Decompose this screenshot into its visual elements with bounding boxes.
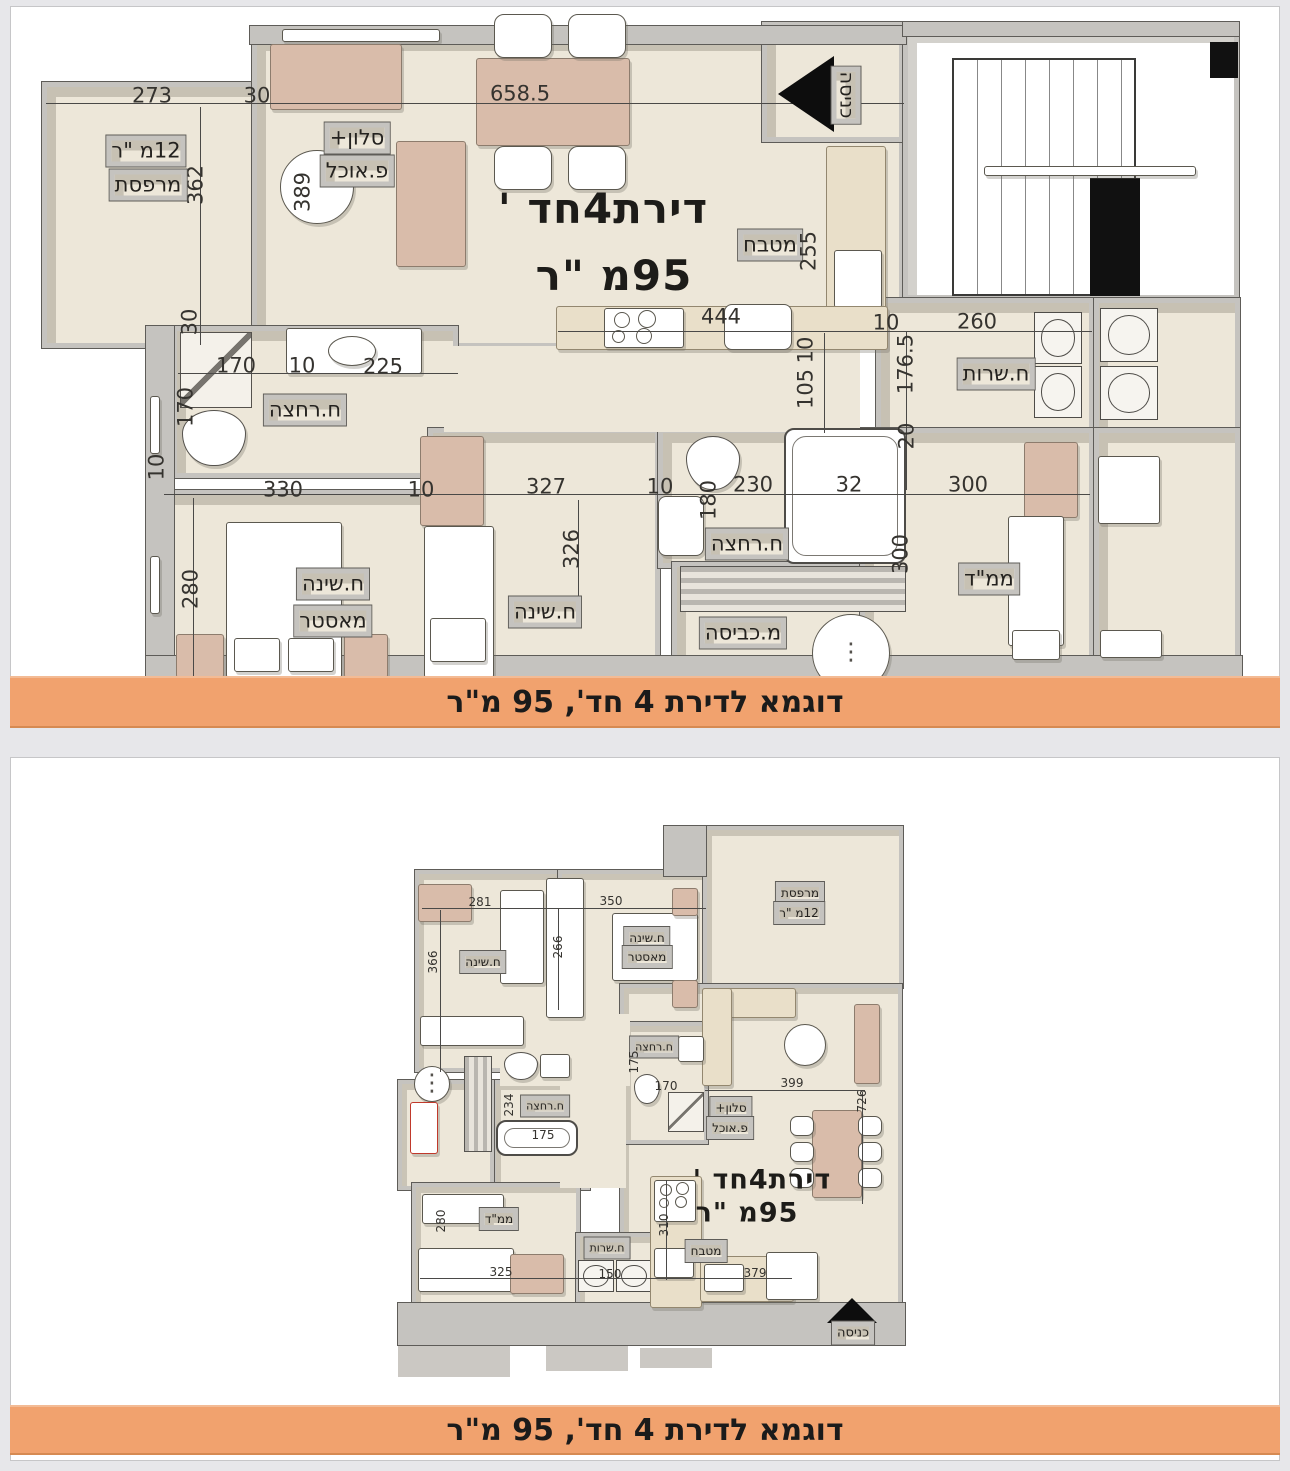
round-table [784, 1024, 826, 1066]
nightstand [176, 634, 224, 678]
wall-footing [546, 1345, 628, 1371]
chair [790, 1142, 814, 1162]
dimension-line [578, 500, 579, 605]
pillow [430, 618, 486, 662]
bed [418, 1248, 514, 1292]
stove-burner-icon [638, 310, 656, 328]
chair [568, 14, 626, 58]
sink-icon [540, 1054, 570, 1078]
stove-burner-icon [659, 1198, 669, 1208]
dimension-line [178, 373, 458, 374]
caption-banner-top: דוגמא לדירת 4 חד', 95 מ"ר [10, 676, 1280, 728]
shelf [1100, 630, 1162, 658]
sofa [270, 44, 402, 110]
dimension-line [824, 333, 825, 433]
sofa [396, 141, 466, 267]
dining-table [476, 58, 630, 146]
drying-rack [680, 566, 906, 612]
dimension-line [164, 494, 1090, 495]
window [150, 556, 160, 614]
washing-machine-icon [1100, 308, 1158, 362]
chair [790, 1168, 814, 1188]
dimension-line [422, 908, 706, 909]
shower-icon [180, 332, 252, 408]
wall [903, 22, 1239, 36]
stove-burner-icon [614, 312, 630, 328]
wall [146, 326, 174, 678]
room-balcony [703, 826, 903, 988]
kitchen-sink-icon [654, 1248, 694, 1278]
washing-machine-icon [1034, 312, 1082, 364]
desk [420, 436, 484, 526]
sink-icon [658, 496, 704, 556]
shower-icon [668, 1092, 704, 1132]
dimension-line [666, 1180, 667, 1280]
refrigerator [834, 250, 882, 308]
stair-railing [984, 166, 1196, 176]
entrance-arrow-icon [827, 1298, 877, 1323]
pillow [234, 638, 280, 672]
stove-burner-icon [676, 1182, 689, 1195]
window [282, 29, 440, 42]
corner-sofa [702, 988, 732, 1086]
desk [510, 1254, 564, 1294]
caption-banner-bottom: דוגמא לדירת 4 חד', 95 מ"ר [10, 1405, 1280, 1455]
caption-text: דוגמא לדירת 4 חד', 95 מ"ר [446, 1413, 843, 1448]
caption-text: דוגמא לדירת 4 חד', 95 מ"ר [446, 685, 843, 720]
sink-icon [678, 1036, 704, 1062]
nightstand [672, 980, 698, 1008]
room-corridor [444, 346, 860, 432]
shelf [422, 1194, 504, 1224]
dimension-line [558, 908, 559, 1010]
shelf [420, 1016, 524, 1046]
desk [1098, 456, 1160, 524]
pillow [1012, 630, 1060, 660]
tv-unit [854, 1004, 880, 1084]
bed [500, 890, 544, 984]
stove-burner-icon [675, 1196, 687, 1208]
pillow [288, 638, 334, 672]
wall-footing [398, 1345, 510, 1377]
bed [612, 913, 698, 981]
window [150, 396, 160, 454]
dimension-line [906, 430, 907, 490]
chair [790, 1116, 814, 1136]
shaft [1210, 42, 1238, 78]
kitchen-sink-icon [724, 304, 792, 350]
entrance-arrow-icon [778, 56, 834, 132]
counter-top [766, 1252, 818, 1300]
round-table [280, 150, 354, 224]
dimension-line [193, 498, 194, 676]
dimension-line [46, 103, 904, 104]
desk [418, 884, 472, 922]
washing-machine-icon [616, 1260, 652, 1292]
dimension-line [440, 910, 441, 1072]
nightstand [672, 888, 698, 916]
chair [568, 146, 626, 190]
washing-machine-icon [1034, 366, 1082, 418]
room-balcony [42, 82, 256, 348]
elevator-shaft [1090, 178, 1140, 296]
bed [1008, 516, 1064, 646]
cabinet [410, 1102, 438, 1154]
washing-machine-icon [414, 1066, 450, 1102]
bathtub-icon [784, 428, 906, 564]
dining-table [812, 1110, 862, 1198]
desk [1024, 442, 1078, 518]
dimension-line [906, 332, 907, 432]
dimension-line [200, 107, 201, 345]
dimension-line [705, 1090, 865, 1091]
washing-machine-icon [1100, 366, 1158, 420]
bathtub-icon [496, 1120, 578, 1156]
dimension-line [420, 1278, 792, 1279]
drying-rack [464, 1056, 492, 1152]
nightstand [344, 634, 388, 678]
wardrobe [546, 878, 584, 1018]
dimension-line [558, 331, 1092, 332]
sink-basin-icon [328, 336, 376, 366]
wall-footing [640, 1348, 712, 1368]
chair [494, 146, 552, 190]
dimension-line [862, 1092, 863, 1204]
washing-machine-icon [578, 1260, 614, 1292]
wall [664, 826, 706, 876]
chair [494, 14, 552, 58]
